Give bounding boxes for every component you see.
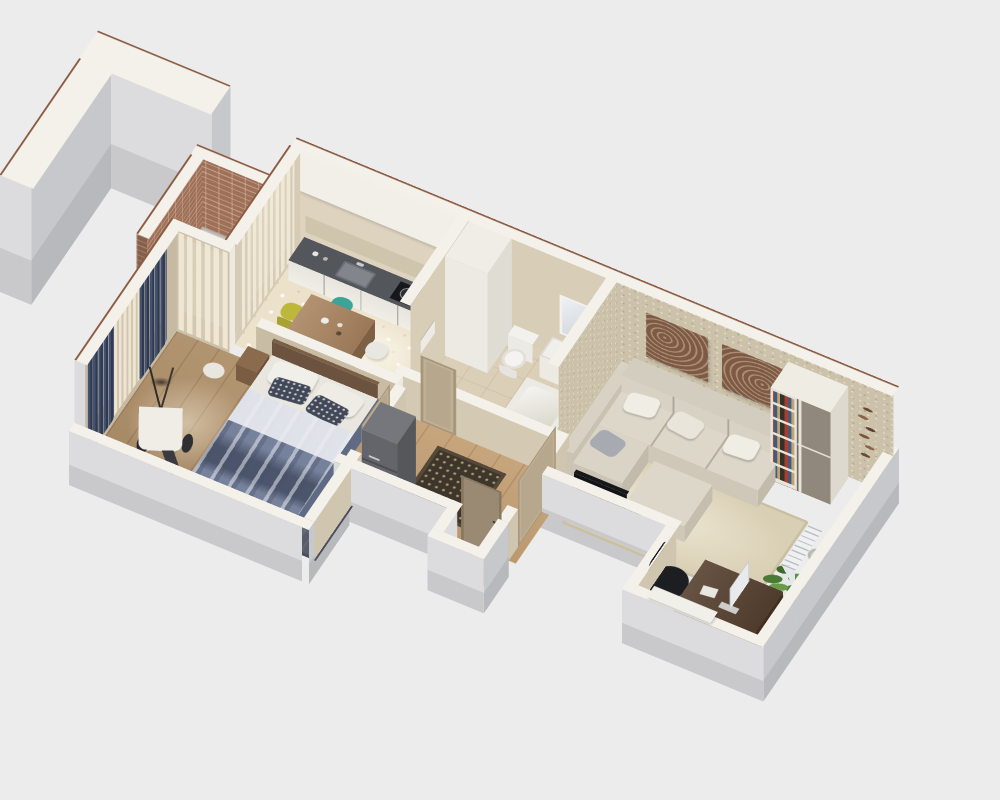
bedroom-sheer-curtains	[178, 232, 227, 349]
west-slab-end	[0, 175, 31, 305]
floorplan-render	[0, 0, 1000, 800]
table-plates	[309, 310, 357, 342]
desk-paper	[699, 585, 718, 598]
wardrobe-handle	[369, 455, 380, 461]
counter-jars	[305, 245, 339, 267]
duct-closet-front	[445, 256, 487, 373]
towel-rail	[421, 319, 435, 353]
floor-vase-with-branches	[138, 366, 183, 452]
bedroom-north-wall-cap	[230, 244, 236, 353]
